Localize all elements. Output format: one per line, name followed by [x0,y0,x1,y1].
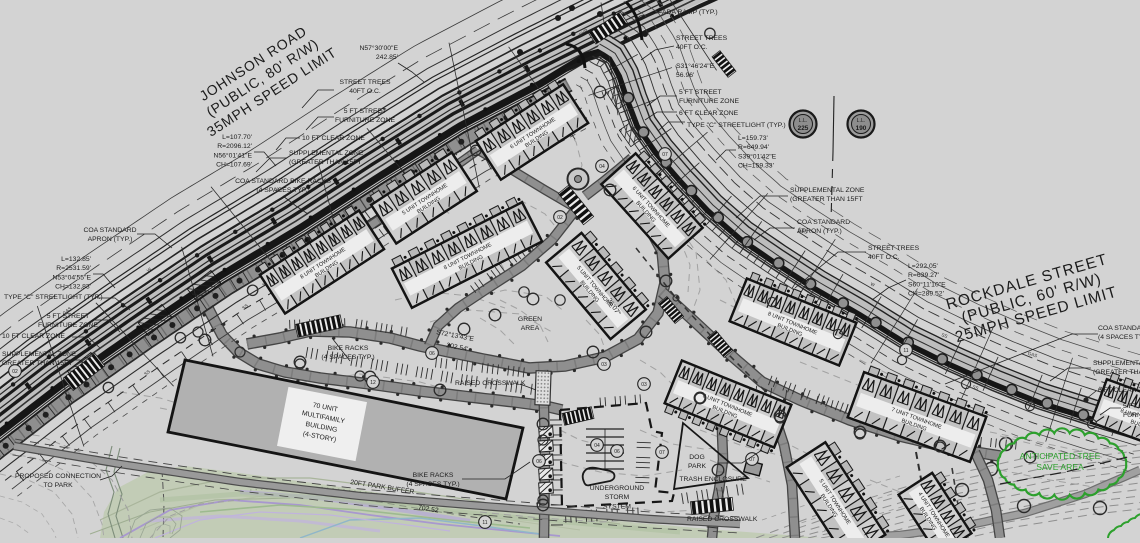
svg-text:L=132.85': L=132.85' [61,256,91,263]
svg-text:CH=289.52': CH=289.52' [908,291,944,298]
svg-text:FURNITURE ZONE: FURNITURE ZONE [38,322,99,329]
svg-text:L=159.73': L=159.73' [738,135,768,142]
svg-text:(4 SPACES TY: (4 SPACES TY [1098,334,1140,341]
svg-text:10 FT CLEAR ZONE: 10 FT CLEAR ZONE [302,135,365,142]
svg-text:R=649.94': R=649.94' [738,144,769,151]
svg-text:FURNITURE ZONE: FURNITURE ZONE [335,117,396,124]
svg-text:S39°01'42"E: S39°01'42"E [738,152,777,160]
svg-text:RAISED CROSSWALK: RAISED CROSSWALK [455,380,526,387]
svg-text:COA STANDARD BIKE RACKS: COA STANDARD BIKE RACKS [235,178,331,185]
svg-text:SUPPLEMENTA: SUPPLEMENTA [1093,360,1140,367]
svg-text:TYPE "C" STREETLIGHT (TYP.): TYPE "C" STREETLIGHT (TYP.) [687,122,786,129]
svg-text:07: 07 [659,450,665,456]
svg-text:FURN: FURN [1123,412,1140,419]
svg-text:STREET TREES: STREET TREES [868,245,920,252]
svg-text:R=639.27': R=639.27' [908,272,939,279]
svg-text:(GREATER THAN 15FT: (GREATER THAN 15FT [289,159,362,166]
svg-text:11: 11 [903,348,908,354]
svg-text:RAISED CROSSWALK: RAISED CROSSWALK [687,516,758,523]
svg-text:ADA RAMP (TYP.): ADA RAMP (TYP.) [662,9,718,16]
svg-text:CH=132,83': CH=132,83' [55,284,91,291]
svg-text:04: 04 [594,443,600,449]
svg-text:CH=159.33': CH=159.33' [738,163,774,170]
svg-text:L=292.05': L=292.05' [908,263,938,270]
svg-text:02: 02 [12,369,18,375]
svg-text:SUPPLEMENTAL ZONE: SUPPLEMENTAL ZONE [289,150,364,157]
svg-text:TO PARK: TO PARK [43,482,73,489]
svg-text:06: 06 [429,351,435,357]
svg-text:56.96': 56.96' [676,72,694,79]
svg-text:242.85': 242.85' [376,54,398,61]
svg-text:APRON (TYP.): APRON (TYP.) [797,228,842,235]
svg-text:PROPOSED CONNECTION: PROPOSED CONNECTION [15,473,101,480]
svg-text:L.L.: L.L. [857,118,866,124]
svg-text:TRASH ENCLOSURE: TRASH ENCLOSURE [679,476,747,483]
svg-text:(GREATER THAN 15FT: (GREATER THAN 15FT [790,196,863,203]
svg-text:40FT O.C.: 40FT O.C. [868,254,900,261]
svg-text:6 FT CLEAR ZO: 6 FT CLEAR ZO [1098,387,1140,394]
svg-text:S31°46'24"E: S31°46'24"E [676,62,715,70]
svg-text:02: 02 [557,215,563,221]
svg-text:ANTICIPATED TREE: ANTICIPATED TREE [1020,451,1101,461]
svg-text:UNDERGROUND: UNDERGROUND [590,485,644,492]
svg-text:COA STANDARD: COA STANDARD [83,227,136,234]
svg-text:5 FT STREET: 5 FT STREET [344,108,387,115]
svg-text:R=2096.12': R=2096.12' [217,143,252,150]
svg-text:STORM: STORM [605,494,630,501]
svg-text:STREET TREES: STREET TREES [339,79,391,86]
svg-text:03: 03 [641,382,647,388]
svg-text:GREATER THAN 15FT: GREATER THAN 15FT [2,360,72,367]
svg-text:N56°01'41"E: N56°01'41"E [213,151,252,159]
svg-text:10 FT CLEAR ZONE: 10 FT CLEAR ZONE [2,333,65,340]
svg-text:190: 190 [856,125,867,132]
svg-text:COA STANDARD: COA STANDARD [797,219,850,226]
svg-text:06: 06 [536,459,542,465]
svg-text:FURNITURE ZONE: FURNITURE ZONE [679,98,740,105]
svg-text:03: 03 [601,362,607,368]
svg-text:6 FT CLEAR ZONE: 6 FT CLEAR ZONE [679,110,739,117]
svg-text:SUPPLEMENTAL ZONE: SUPPLEMENTAL ZONE [790,187,865,194]
svg-text:SYSTEM: SYSTEM [603,503,631,510]
svg-text:L=107.70': L=107.70' [222,134,252,141]
svg-text:5 FT S: 5 FT S [1123,403,1140,410]
svg-text:PARK: PARK [688,463,706,470]
svg-text:CH=107.69': CH=107.69' [216,162,252,169]
svg-text:STREET TREES: STREET TREES [676,35,728,42]
svg-text:DOG: DOG [689,454,704,461]
svg-text:BIKE RACKS: BIKE RACKS [328,345,369,352]
svg-text:(4 SPACES TYP.): (4 SPACES TYP.) [256,187,309,194]
svg-text:(4 SPACES TYP.): (4 SPACES TYP.) [321,354,374,361]
svg-text:5 FT STREET: 5 FT STREET [47,313,90,320]
svg-text:SUPPLEMENTAL ZONE: SUPPLEMENTAL ZONE [2,351,77,358]
svg-text:(GREATER THA: (GREATER THA [1093,369,1140,376]
svg-text:SAVE AREA: SAVE AREA [1036,462,1084,472]
svg-text:N57°30'00"E: N57°30'00"E [359,44,398,52]
svg-text:(4 SPACES TYP.): (4 SPACES TYP.) [406,481,459,488]
svg-text:COA STANDARD: COA STANDARD [1098,325,1140,332]
svg-text:11: 11 [482,520,487,526]
svg-text:06: 06 [614,449,620,455]
svg-text:L.L.: L.L. [799,118,808,124]
svg-text:BIKE RACKS: BIKE RACKS [413,472,454,479]
svg-text:12: 12 [370,380,376,386]
svg-text:AREA: AREA [521,325,540,332]
svg-text:07: 07 [662,152,668,158]
svg-text:N53°04'55"E: N53°04'55"E [52,273,91,281]
svg-text:5 FT STREET: 5 FT STREET [679,89,722,96]
svg-text:225: 225 [798,125,809,132]
svg-text:R=2531.59': R=2531.59' [56,265,91,272]
svg-text:APRON (TYP.): APRON (TYP.) [88,236,133,243]
svg-text:04: 04 [599,164,605,170]
svg-text:S60°11'10"E: S60°11'10"E [908,280,946,288]
svg-text:40FT O.C.: 40FT O.C. [676,44,708,51]
svg-text:TYPE "C" STREETLIGHT (TYP.): TYPE "C" STREETLIGHT (TYP.) [4,294,103,301]
svg-text:GREEN: GREEN [518,316,542,323]
svg-text:40FT O.C.: 40FT O.C. [349,88,381,95]
